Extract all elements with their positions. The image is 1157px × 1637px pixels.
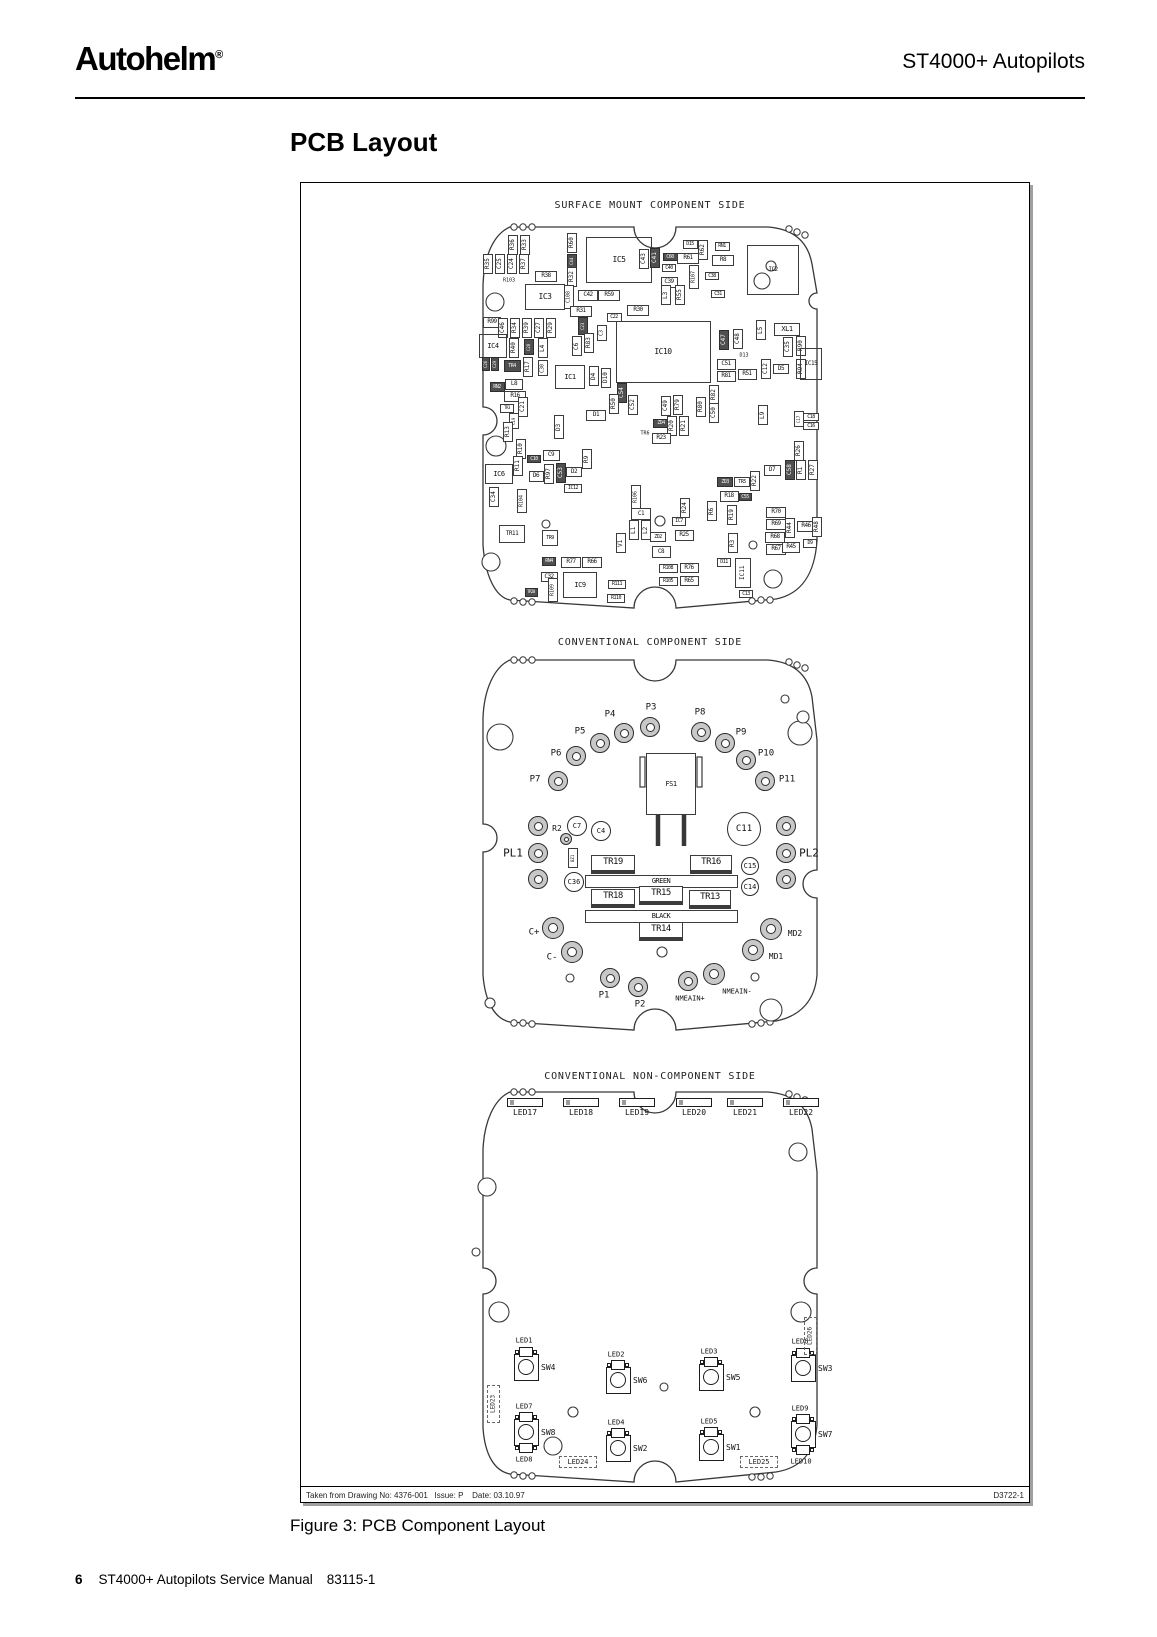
component-p5-hole — [596, 739, 605, 748]
component-pad — [542, 917, 564, 939]
component-ic6: IC6 — [485, 464, 513, 484]
component-p8-label: P8 — [695, 709, 706, 718]
component-c7: C7 — [567, 816, 587, 836]
component-r110: R110 — [607, 594, 625, 603]
component-led21-label: LED21 — [733, 1109, 757, 1117]
component-sw5-button-dome — [703, 1369, 719, 1385]
component-p4-label: P4 — [605, 711, 616, 720]
component-tr15: TR15 — [639, 886, 683, 905]
component-pl1: PL1 — [503, 848, 523, 859]
component-p10-label: P10 — [758, 750, 774, 759]
component-p4 — [614, 723, 634, 743]
component-rn2: RN2 — [490, 382, 505, 392]
component-r30: R30 — [627, 305, 649, 316]
component-c35: C35 — [783, 337, 793, 357]
component-pad — [776, 843, 796, 863]
component-r108: R108 — [659, 564, 678, 573]
component-p2: P2 — [635, 1001, 646, 1010]
component-led3-label: LED3 — [701, 1349, 718, 1356]
component-d13: D13 — [739, 354, 748, 359]
component-zd3: ZD3 — [717, 477, 733, 487]
component-r104: R104 — [517, 489, 527, 513]
component-r111: R111 — [608, 580, 626, 589]
component-p8-hole — [697, 728, 706, 737]
component-r81: R81 — [717, 371, 736, 382]
component-led2 — [611, 1360, 625, 1370]
component-sw4-label: SW4 — [541, 1364, 555, 1372]
component-c10: C10 — [527, 455, 541, 463]
component-c53: C53 — [556, 463, 566, 483]
component-c43: C43 — [639, 249, 649, 269]
component-r76: R76 — [680, 563, 699, 573]
component-sw3 — [791, 1355, 816, 1382]
component-r21: R21 — [679, 416, 689, 436]
component-p9 — [715, 733, 735, 753]
component-c30: C30 — [538, 360, 548, 376]
component-led22 — [783, 1098, 819, 1107]
component-led21 — [727, 1098, 763, 1107]
component-p6 — [566, 746, 586, 766]
component-l1: L1 — [629, 520, 639, 540]
component-p9-label: P9 — [736, 729, 747, 738]
component-ic3: IC3 — [525, 284, 565, 310]
component-ic11: IC11 — [735, 558, 751, 588]
component-c3: C3 — [597, 325, 607, 341]
component-sw3-label: SW3 — [818, 1365, 832, 1373]
component-c1: C1 — [631, 508, 651, 520]
component-r48: R48 — [812, 517, 822, 537]
component-c14: C14 — [741, 878, 759, 896]
component-tr3: TR3 — [500, 404, 514, 413]
component-r51: R51 — [738, 369, 757, 380]
component-pad-hole — [634, 983, 643, 992]
component-sw6 — [606, 1367, 631, 1394]
component-led18-label: LED18 — [569, 1109, 593, 1117]
component-tr13: TR13 — [689, 890, 731, 909]
figure-source-note: Taken from Drawing No: 4376-001 Issue: P… — [306, 1491, 525, 1500]
component-c8: C8 — [652, 546, 671, 558]
component-pad-hole — [766, 924, 776, 934]
component-c50: C50 — [709, 403, 719, 423]
component-xl1: XL1 — [774, 323, 800, 336]
component-r107: R107 — [689, 265, 699, 289]
component-r103: R103 — [503, 279, 515, 284]
component-d5: D5 — [773, 364, 789, 374]
component-r77: R77 — [561, 557, 581, 568]
component-c49: C49 — [661, 396, 671, 416]
component-p11-label: P11 — [779, 776, 795, 785]
component-sw2-button-dome — [610, 1440, 626, 1456]
component-r83: R83 — [584, 333, 594, 353]
component-d2: D2 — [566, 467, 582, 477]
component-led1 — [519, 1347, 533, 1357]
component-r26: R26 — [794, 441, 804, 461]
component-r24: R24 — [680, 498, 690, 518]
component-led17 — [507, 1098, 543, 1107]
component-r17: R17 — [523, 357, 533, 377]
component-c24: C24 — [507, 254, 517, 274]
component-sw5 — [699, 1364, 724, 1391]
component-led4-label: LED4 — [608, 1420, 625, 1427]
doc-code: 83115-1 — [327, 1572, 376, 1587]
component-p4-hole — [620, 729, 629, 738]
component-sw4-button-dome — [518, 1359, 534, 1375]
component-r31: R31 — [570, 306, 592, 317]
figure-footer: Taken from Drawing No: 4376-001 Issue: P… — [300, 1486, 1030, 1503]
component-tr16: TR16 — [690, 855, 732, 874]
component-sw3-button-dome — [795, 1360, 811, 1376]
component-r79: R79 — [673, 395, 683, 415]
component-pad — [528, 869, 548, 889]
component-pad — [742, 939, 764, 961]
component-r33: R33 — [520, 235, 530, 255]
component-sw5-label: SW5 — [726, 1374, 740, 1382]
component-pad-hole — [548, 923, 558, 933]
component-r59: R59 — [598, 290, 620, 301]
component-led8 — [519, 1443, 533, 1453]
component-pad-hole — [782, 849, 791, 858]
component-ic4: IC4 — [479, 334, 507, 358]
component-r60: R60 — [567, 233, 577, 253]
component-sw7-label: SW7 — [818, 1431, 832, 1439]
component-r34: R34 — [510, 318, 520, 338]
component-r9: R9 — [582, 449, 592, 469]
component-r39: R39 — [522, 318, 532, 338]
component-ic7: IC7 — [672, 517, 686, 526]
component-r11: R11 — [513, 456, 523, 476]
component-nmeain+: NMEAIN+ — [675, 996, 705, 1003]
component-sw2 — [606, 1435, 631, 1462]
component-c21: C21 — [518, 397, 528, 417]
component-r6: R6 — [707, 501, 717, 521]
component-c11: C11 — [727, 812, 761, 846]
component-rn4: RN4 — [542, 557, 556, 566]
component-c16: C16 — [803, 422, 819, 430]
manual-page: Autohelm® ST4000+ Autopilots PCB Layout — [0, 0, 1157, 1637]
component-r62: R62 — [698, 240, 708, 260]
component-led1-label: LED1 — [516, 1338, 533, 1345]
component-r106: R106 — [631, 485, 641, 509]
component-c12: C12 — [761, 359, 771, 379]
component-tr11: TR11 — [499, 525, 525, 543]
component-tr9: TR9 — [542, 530, 558, 546]
component-tr4: TR4 — [504, 360, 521, 372]
component-pad-hole — [782, 822, 791, 831]
component-tr14: TR14 — [639, 922, 683, 941]
component-c9: C9 — [543, 450, 560, 461]
component-led17-label: LED17 — [513, 1109, 537, 1117]
component-c25: C25 — [495, 254, 505, 274]
component-c42: C42 — [578, 290, 598, 301]
component-c13: C13 — [739, 590, 753, 598]
component-c29: C29 — [491, 357, 499, 371]
component-r8: R8 — [712, 255, 734, 266]
component-p5-label: P5 — [575, 728, 586, 737]
component-p3 — [640, 717, 660, 737]
component-sw8-button-dome — [518, 1424, 534, 1440]
component-sw6-label: SW6 — [633, 1377, 647, 1385]
component-r97: R97 — [544, 464, 554, 484]
component-l4: L4 — [538, 338, 548, 358]
component-led3 — [704, 1357, 718, 1367]
component-r36: R36 — [508, 235, 518, 255]
component-l5: L5 — [756, 320, 766, 340]
component-c51: C51 — [717, 359, 736, 370]
component-led24: LED24 — [559, 1456, 597, 1468]
component-led4 — [611, 1428, 625, 1438]
component-sw4 — [514, 1354, 539, 1381]
component-ic2: IC2 — [747, 245, 799, 295]
component-r70: R70 — [766, 507, 786, 518]
component-r69: R69 — [766, 519, 786, 530]
page-footer: 6ST4000+ Autopilots Service Manual83115-… — [75, 1572, 375, 1587]
component-sw1-button-dome — [703, 1439, 719, 1455]
component-pad — [776, 816, 796, 836]
component-d9: D9 — [803, 539, 817, 548]
component-c48: C48 — [733, 329, 743, 349]
component-p11 — [755, 771, 775, 791]
component-pad — [528, 843, 548, 863]
component-r61: R61 — [677, 253, 699, 264]
component-p7 — [548, 771, 568, 791]
component-led25: LED25 — [740, 1456, 778, 1468]
component-pad-hole — [534, 849, 543, 858]
component-r27: R27 — [808, 460, 818, 480]
component-r32: R32 — [567, 267, 577, 287]
component-r22: R22 — [750, 471, 760, 491]
component-r109: R109 — [548, 578, 558, 602]
component-r65: R65 — [680, 576, 699, 586]
component-pad-hole — [534, 822, 543, 831]
component-r38: R38 — [535, 271, 557, 282]
component-d10: D10 — [601, 368, 611, 388]
component-ic1: IC1 — [555, 365, 585, 389]
component-pad — [703, 963, 725, 985]
component-r50: R50 — [609, 394, 619, 414]
component-c28: C28 — [524, 339, 534, 355]
component-p7-label: P7 — [530, 776, 541, 785]
component-r35: R35 — [483, 254, 493, 274]
component-md1: MD1 — [769, 953, 783, 961]
component-led22-label: LED22 — [789, 1109, 813, 1117]
component-sw8-label: SW8 — [541, 1429, 555, 1437]
component-r18: R18 — [720, 491, 739, 502]
component-led2-label: LED2 — [608, 1352, 625, 1359]
component-pad-hole — [782, 875, 791, 884]
component-p10-hole — [742, 756, 751, 765]
component-d3: D3 — [554, 415, 564, 439]
component-c36: C36 — [564, 872, 584, 892]
component-zd2: ZD2 — [650, 532, 666, 542]
component-tr19: TR19 — [591, 855, 635, 874]
component-sw7-button-dome — [795, 1426, 811, 1442]
component-p11-hole — [761, 777, 770, 786]
manual-title: ST4000+ Autopilots Service Manual — [99, 1572, 313, 1587]
component-p1: P1 — [599, 992, 610, 1001]
component-led7 — [519, 1412, 533, 1422]
component-p10 — [736, 750, 756, 770]
figure-drawing-number: D3722-1 — [993, 1491, 1024, 1500]
component-r13: R13 — [503, 422, 513, 442]
component-pad — [628, 977, 648, 997]
component-c60: C60 — [663, 253, 678, 261]
component-tr18: TR18 — [591, 889, 635, 908]
component-r105: R105 — [659, 577, 678, 586]
page-number: 6 — [75, 1572, 83, 1587]
component-p3-hole — [646, 723, 655, 732]
component-l9: L9 — [758, 405, 768, 425]
component-pad-hole — [567, 947, 577, 957]
component-p6-hole — [572, 752, 581, 761]
component-l3: L3 — [661, 285, 671, 305]
component-led20-label: LED20 — [682, 1109, 706, 1117]
component-pad-hole — [606, 974, 615, 983]
component-p5 — [590, 733, 610, 753]
component-led19-label: LED19 — [625, 1109, 649, 1117]
component-led9 — [796, 1414, 810, 1424]
component-c-: C- — [547, 954, 558, 963]
component-c55: C55 — [739, 493, 752, 501]
component-pad — [561, 941, 583, 963]
component-tr6: TR6 — [640, 432, 649, 437]
component-p6-label: P6 — [551, 750, 562, 759]
component-sw2-label: SW2 — [633, 1445, 647, 1453]
component-r55: R55 — [675, 285, 685, 305]
component-c15: C15 — [741, 857, 759, 875]
component-led9-label: LED9 — [792, 1406, 809, 1413]
component-r44: R44 — [785, 518, 795, 538]
component-md2: MD2 — [788, 930, 802, 938]
component-d11: D11 — [717, 558, 731, 567]
figure-caption: Figure 3: PCB Component Layout — [290, 1516, 545, 1536]
component-led5-label: LED5 — [701, 1419, 718, 1426]
component-v1: V1 — [616, 533, 626, 553]
component-pad-hole — [684, 977, 693, 986]
component-layer: R36R33R35C25C24R37R103R38R60C44R32IC5IC3… — [0, 0, 1157, 1637]
component-pad-hole — [748, 945, 758, 955]
component-led19 — [619, 1098, 655, 1107]
component-pad-hole — [709, 969, 719, 979]
component-c26: C26 — [482, 357, 490, 371]
component-fs1: FS1 — [646, 753, 696, 815]
component-r40: R40 — [509, 338, 519, 358]
component-led5 — [704, 1427, 718, 1437]
component-pad-hole — [534, 875, 543, 884]
component-r29: R29 — [546, 318, 556, 338]
component-sw8 — [514, 1419, 539, 1446]
component-r1: R1 — [796, 460, 806, 480]
component-led26: LED26 — [804, 1317, 817, 1355]
component-pad — [678, 971, 698, 991]
component-d15: D15 — [683, 240, 698, 249]
component-c6: C6 — [572, 336, 582, 356]
component-nmeain-: NMEAIN- — [722, 989, 752, 996]
component-sw6-button-dome — [610, 1372, 626, 1388]
component-pl2: PL2 — [799, 848, 819, 859]
component-l8: L8 — [505, 379, 523, 390]
component-tr20: TR20 — [525, 588, 538, 597]
component-led7-label: LED7 — [516, 1404, 533, 1411]
component-rn1: RN1 — [715, 242, 730, 251]
component-c52: C52 — [628, 395, 638, 415]
component-led18 — [563, 1098, 599, 1107]
component-tr5: TR5 — [734, 477, 750, 487]
component-ic15: IC15 — [800, 348, 822, 380]
component-pad — [560, 833, 572, 845]
component-ic9: IC9 — [563, 572, 597, 598]
component-d1: D1 — [586, 410, 606, 421]
component-r82: R82 — [709, 385, 719, 405]
component-d4: D4 — [589, 366, 599, 386]
component-c18: C18 — [803, 413, 819, 421]
component-r19: R19 — [727, 505, 737, 525]
component-pad-hole — [564, 837, 569, 842]
component-led10-label: LED10 — [790, 1459, 811, 1466]
component-r37: R37 — [519, 254, 529, 274]
component-d6: D6 — [529, 471, 544, 482]
component-pad — [600, 968, 620, 988]
component-c31: C31 — [711, 290, 725, 298]
component-ic10: IC10 — [616, 321, 711, 383]
component-bz1: BZ1 — [568, 848, 578, 868]
component-p7-hole — [554, 777, 563, 786]
component-led23: LED23 — [487, 1385, 500, 1423]
component-r80: R80 — [696, 397, 706, 417]
component-sw1 — [699, 1434, 724, 1461]
component-sw1-label: SW1 — [726, 1444, 740, 1452]
component-r45: R45 — [782, 542, 800, 553]
component-c4: C4 — [591, 821, 611, 841]
component-led8-label: LED8 — [516, 1457, 533, 1464]
component-r2: R2 — [552, 825, 562, 833]
component-c+: C+ — [529, 929, 540, 938]
component-r23: R23 — [652, 433, 671, 444]
component-d7: D7 — [764, 465, 781, 476]
component-pad — [776, 869, 796, 889]
component-c38: C38 — [705, 272, 719, 280]
component-r3: R3 — [728, 533, 738, 553]
component-led10 — [796, 1445, 810, 1455]
component-sw7 — [791, 1421, 816, 1448]
component-c27: C27 — [534, 318, 544, 338]
component-c40: C40 — [662, 264, 676, 272]
component-c58: C58 — [785, 460, 795, 480]
component-led20 — [676, 1098, 712, 1107]
component-c34: C34 — [489, 487, 499, 507]
component-c41: C41 — [650, 248, 660, 268]
component-ic12: IC12 — [564, 484, 582, 493]
component-p8 — [691, 722, 711, 742]
component-r66: R66 — [582, 557, 602, 568]
component-c44: C44 — [567, 254, 577, 268]
component-c47: C47 — [719, 330, 729, 350]
component-p3-label: P3 — [646, 704, 657, 713]
component-pad — [760, 918, 782, 940]
component-pad — [528, 816, 548, 836]
component-r25: R25 — [675, 530, 694, 541]
component-p9-hole — [721, 739, 730, 748]
